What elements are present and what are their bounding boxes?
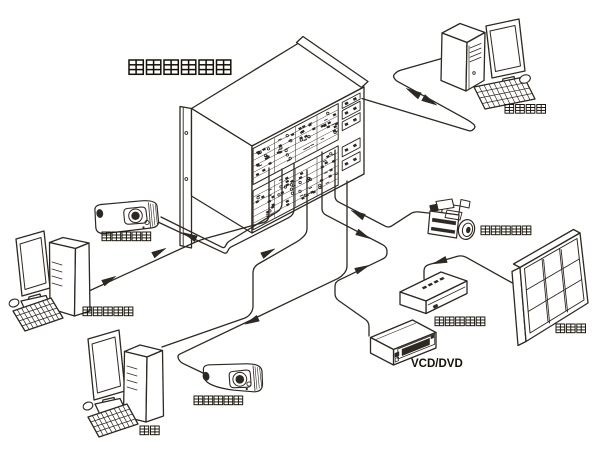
svg-text:VCD/DVD: VCD/DVD (411, 358, 463, 370)
